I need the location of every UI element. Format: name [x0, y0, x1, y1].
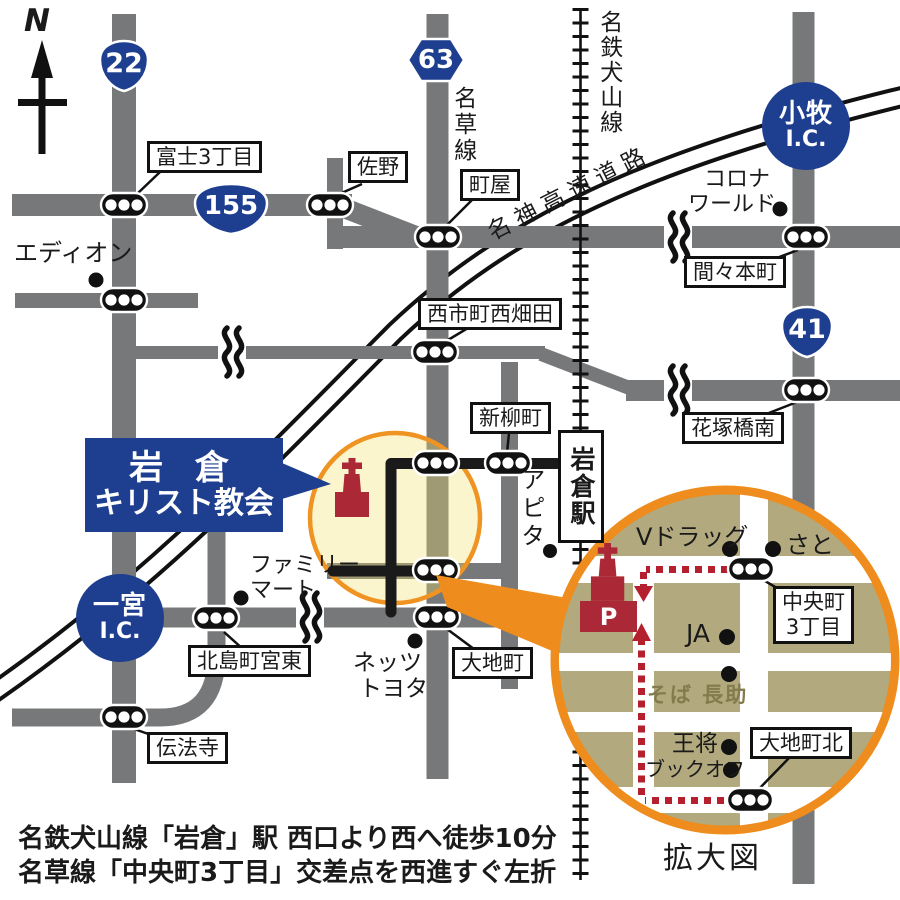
traffic-light-icon [783, 378, 829, 402]
nagusa-line-label: 名草線 [449, 86, 475, 164]
tag-kitajimacho: 北島町宮東 [188, 645, 311, 677]
familymart-dot [234, 591, 249, 606]
route-shield-22: 22 [95, 39, 153, 93]
osho-label: 王将 [672, 732, 718, 758]
traffic-light-icon [307, 193, 353, 217]
access-map: N 22 155 41 63 小牧 I.C. 一宮 I.C. 岩 倉 キリスト教… [0, 0, 900, 900]
tag-machiya: 町屋 [460, 169, 520, 201]
tag-hanatsukabashi: 花塚橋南 [682, 412, 784, 444]
directions-line2: 名草線「中央町3丁目」交差点を西進すぐ左折 [18, 852, 556, 889]
ichinomiya-ic: 一宮 I.C. [76, 574, 164, 662]
road-break-icon [664, 366, 692, 414]
traffic-light-icon [727, 788, 773, 812]
iwakura-station: 岩倉駅 [558, 430, 604, 543]
netz-toyota-label: ネッツ トヨタ [353, 651, 428, 703]
north-compass-icon [18, 40, 67, 154]
tag-sano: 佐野 [348, 151, 408, 183]
sato-dot [765, 541, 781, 557]
tag-mamahoncho: 間々本町 [684, 256, 786, 288]
komaki-ic: 小牧 I.C. [762, 82, 850, 170]
tag-fuji3: 富士3丁目 [147, 141, 262, 173]
traffic-light-icon [413, 451, 459, 475]
ja-dot [719, 629, 735, 645]
soba-chosuke-dot [721, 666, 737, 682]
tag-daichicho: 大地町 [452, 647, 533, 679]
directions-line1: 名鉄犬山線「岩倉」駅 西口より西へ徒歩10分 [18, 818, 557, 855]
meitetsu-line-label: 名鉄犬山線 [595, 10, 621, 135]
osho-dot [721, 739, 737, 755]
traffic-light-icon [193, 606, 239, 630]
netz-toyota-dot [408, 634, 423, 649]
traffic-light-icon [783, 225, 829, 249]
corona-world-label: コロナ ワールド [688, 168, 770, 217]
traffic-light-icon [101, 193, 147, 217]
tag-shinyanagicho: 新柳町 [470, 402, 551, 434]
route-shield-155: 155 [190, 182, 272, 236]
parking-label: P [580, 601, 637, 632]
inset-title: 拡大図 [663, 842, 762, 876]
bookoff-label: ブックオフ [645, 758, 745, 780]
traffic-light-icon [728, 557, 774, 581]
edion-dot [89, 273, 104, 288]
tag-denboji: 伝法寺 [147, 732, 228, 764]
familymart-label: ファミリー マート [250, 554, 360, 603]
destination-label: 岩 倉 キリスト教会 [85, 438, 283, 532]
route-shield-63: 63 [407, 37, 465, 83]
ja-label: JA [686, 620, 710, 648]
tag-daichicho-kita: 大地町北 [750, 727, 852, 759]
vdrug-label: Vドラッグ [636, 524, 748, 551]
traffic-light-icon [101, 288, 147, 312]
sato-label: さと [786, 532, 834, 559]
apita-label: アピタ [517, 467, 544, 551]
traffic-light-icon [101, 705, 147, 729]
tag-chuocho: 中央町 3丁目 [773, 586, 854, 644]
north-label: N [24, 4, 50, 39]
edion-label: エディオン [14, 240, 132, 267]
road-break-icon [664, 213, 692, 261]
traffic-light-icon [415, 225, 461, 249]
road-break-icon [218, 328, 246, 376]
tag-nishiichicho: 西市町西畑田 [418, 298, 562, 330]
traffic-light-icon [412, 340, 458, 364]
apita-dot [543, 544, 557, 558]
route-shield-41: 41 [777, 305, 837, 359]
soba-chosuke-label: そば 長助 [647, 684, 748, 708]
